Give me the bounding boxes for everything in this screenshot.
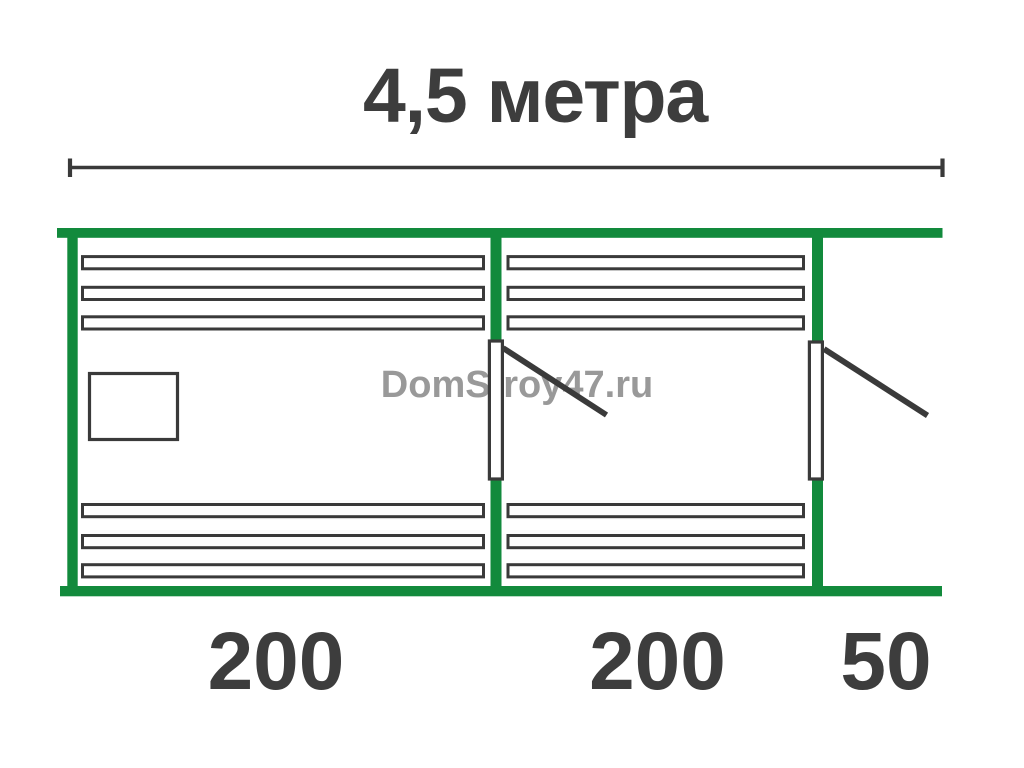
svg-text:200: 200 xyxy=(208,616,345,707)
svg-text:4,5 метра: 4,5 метра xyxy=(363,53,709,139)
svg-text:50: 50 xyxy=(840,616,931,707)
svg-text:DomStroy47.ru: DomStroy47.ru xyxy=(381,364,653,406)
svg-text:200: 200 xyxy=(589,616,726,707)
